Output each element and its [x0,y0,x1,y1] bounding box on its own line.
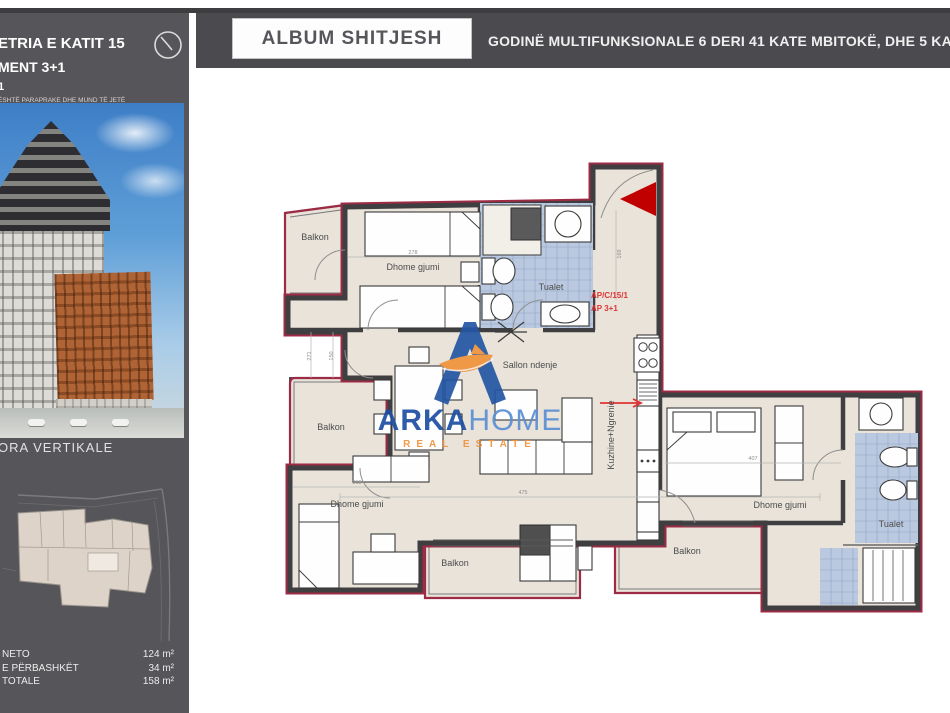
sidebar: ETRIA E KATIT 15 MENT 3+1 1 ËSHTË PARAPR… [0,13,189,713]
area-table: NETO 124 m² E PËRBASHKËT 34 m² TOTALE 15… [2,648,174,689]
dimension-label: 407 [748,456,757,462]
room-label: Dhome gjumi [386,262,439,272]
room-label: Dhome gjumi [330,499,383,509]
room-label: Balkon [441,558,469,568]
album-title: ALBUM SHITJESH [262,28,443,50]
area-value: 124 m² [143,648,174,662]
area-row-neto: NETO 124 m² [2,648,174,662]
bath-mat [863,548,915,603]
vertical-section-label: ORA VERTIKALE [0,440,113,455]
area-label: E PËRBASHKËT [2,662,79,676]
dimension-label: 150 [329,351,335,360]
sink-icon [550,305,580,323]
building-title: GODINË MULTIFUNKSIONALE 6 DERI 41 KATE M… [488,13,950,68]
area-row-perbashket: E PËRBASHKËT 34 m² [2,662,174,676]
unit-code-line1: AP/C/15/1 [591,291,628,300]
sidebar-plan-title: ETRIA E KATIT 15 [0,35,125,52]
room-label: Kuzhine+Ngrenie [606,400,616,469]
area-label: TOTALE [2,675,40,689]
dimension-label: 475 [518,490,527,496]
page: { "header": { "album_title": "ALBUM SHIT… [0,0,950,713]
bidet-icon [491,294,513,320]
dimension-label: 318 [352,480,361,486]
toilet-icon [880,480,906,500]
stove-icon [634,338,660,372]
header-bar: ALBUM SHITJESH GODINË MULTIFUNKSIONALE 6… [196,13,950,68]
clock-icon [152,29,184,61]
room-label: Balkon [673,546,701,556]
desk-icon [353,552,419,584]
bed-icon [365,212,480,256]
room-label: Balkon [301,232,329,242]
sidebar-apartment-type: MENT 3+1 [0,59,65,75]
area-row-totale: TOTALE 158 m² [2,675,174,689]
dining-table-icon [395,366,443,450]
room-label: Tualet [539,282,564,292]
fridge-icon [637,502,659,532]
dimension-label: 169 [617,249,623,258]
area-label: NETO [2,648,30,662]
area-value: 158 m² [143,675,174,689]
building-render-image [0,103,184,438]
sidebar-unit-number: 1 [0,81,4,93]
room-label: Sallon ndenje [503,360,558,370]
unit-code-line2: AP 3+1 [591,304,618,313]
sink-icon [880,447,910,467]
shower-tiles [820,548,858,605]
dimension-label: 271 [307,351,313,360]
toilet-icon [493,258,515,284]
sink-icon [555,211,581,237]
site-plan [0,473,190,643]
washing-machine-icon [511,208,541,240]
room-label: Tualet [879,519,904,529]
album-title-box: ALBUM SHITJESH [232,18,472,59]
room-label: Balkon [317,422,345,432]
room-label: Dhome gjumi [753,500,806,510]
floor-plan: AP/C/15/1 AP 3+1 BalkonDhome gjumiTualet… [283,150,923,620]
dimension-label: 278 [408,250,417,256]
area-value: 34 m² [148,662,174,676]
